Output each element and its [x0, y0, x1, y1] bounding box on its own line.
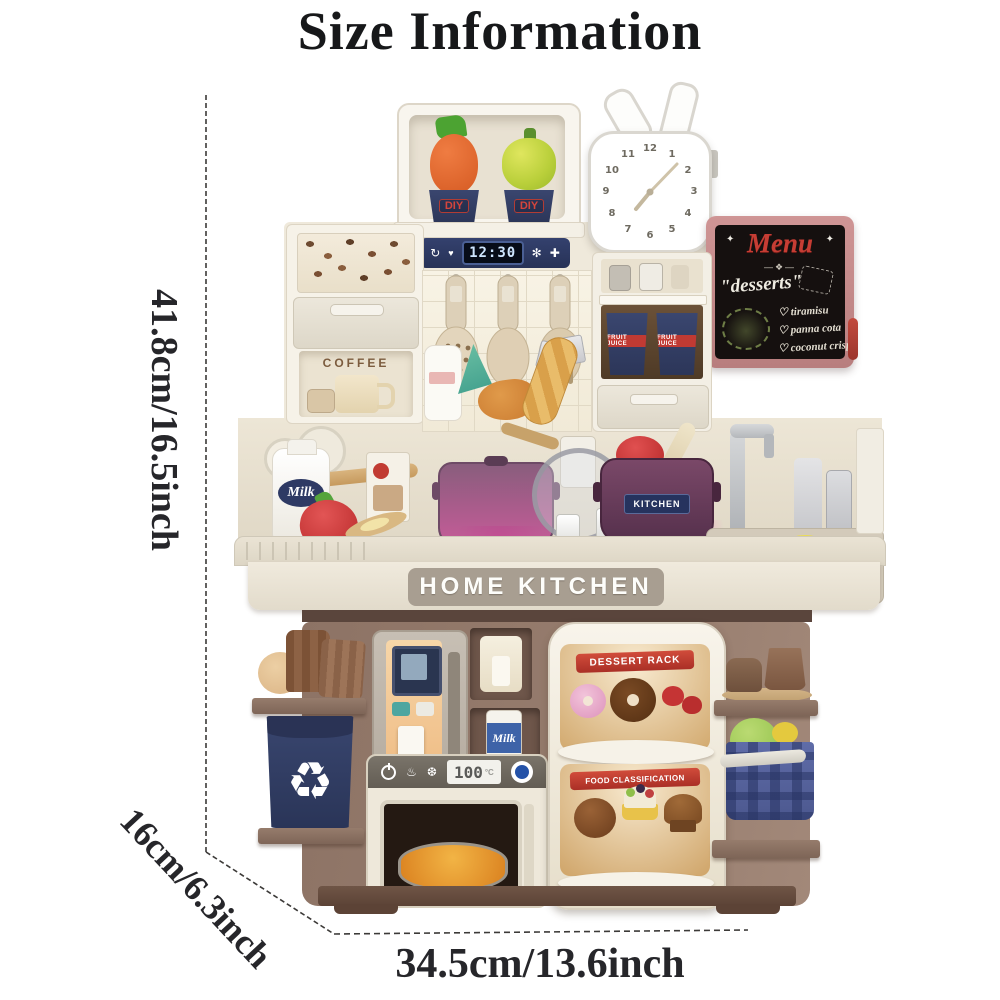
right-shelf-base: [712, 840, 820, 858]
size-information-image: Size Information 41.8cm/16.5inch 16cm/6.…: [0, 0, 1000, 1000]
menu-board: ✦ ✦ Menu —❖— "desserts" ♡ tiramisu ♡ pan…: [706, 216, 854, 368]
spice-jar: [609, 265, 631, 291]
clock-number: 10: [604, 165, 620, 177]
diy-cup-1-label: DIY: [439, 199, 469, 213]
temperature-value: 100: [454, 763, 483, 782]
pudding-mold-toy: [726, 658, 762, 692]
fruit-topping: [645, 789, 654, 798]
fruit-juice-label: FRUIT JUICE: [607, 335, 647, 347]
microwave: ♨ ❆ 100 °C: [366, 754, 548, 908]
clock-number: 11: [620, 149, 636, 161]
coffee-machine: COFFEE: [286, 224, 424, 424]
vending-button: [416, 702, 434, 716]
right-shelf-board: [714, 700, 818, 716]
clock-number: 5: [664, 224, 680, 236]
cereal-box-art: [373, 463, 389, 479]
clock-number: 6: [642, 230, 658, 242]
menu-item: ♡ coconut crisp: [778, 338, 852, 355]
cabinet-drawer: [597, 385, 709, 429]
rack-shelf: [558, 740, 714, 764]
yellow-fruit-toy: [772, 722, 798, 744]
drainboard: [246, 542, 372, 560]
temperature-unit: °C: [485, 768, 494, 777]
fruit-juice-label: FRUIT JUICE: [657, 335, 697, 347]
diy-cup-2: DIY: [500, 190, 558, 222]
pot-lid-knob: [484, 456, 508, 466]
clock-number: 2: [680, 165, 696, 177]
cabinet-base: [318, 886, 796, 906]
rack-top-tier: DESSERT RACK: [560, 644, 710, 750]
menu-item-text: tiramisu: [790, 304, 828, 318]
power-icon: [381, 765, 396, 780]
microwave-control-strip: ♨ ❆ 100 °C: [368, 756, 546, 788]
espresso-cup: [307, 389, 335, 413]
donut-hole: [627, 694, 639, 706]
strawberry-toy-small: [682, 696, 702, 714]
side-panel: [856, 428, 884, 534]
control-panel: ↻ ♥ 12:30 ✻ ✚: [420, 238, 570, 268]
milk-can-label: Milk: [487, 723, 521, 753]
toy-kitchen: DIY DIY ↻ ♥ 12:30 ✻ ✚ 12 1 2 3 4 5 6 7 8…: [0, 0, 1000, 1000]
dessert-rack: DESSERT RACK FOOD CLASSIFICATION: [548, 622, 726, 910]
clock-display: 12:30: [462, 241, 524, 265]
fruit-topping: [626, 788, 635, 797]
clock-number: 4: [680, 208, 696, 220]
heart-bullet-icon: ♡: [778, 324, 788, 337]
muffin-base: [670, 820, 696, 832]
rabbit-clock: 12 1 2 3 4 5 6 7 8 9 10 11: [588, 131, 712, 253]
pot-handle: [712, 482, 721, 502]
steam-icon: ♨: [406, 765, 417, 779]
chalk-marker: [848, 318, 858, 360]
cupcake-top: [624, 786, 656, 808]
pudding-mold-toy: [764, 648, 806, 690]
chalk-doodle-dessert: [722, 308, 770, 350]
faucet-body: [730, 430, 745, 536]
recycle-icon: ♻: [264, 740, 356, 824]
plus-icon: ✚: [550, 246, 560, 260]
clock-number: 12: [642, 143, 658, 155]
heart-bullet-icon: ♡: [778, 342, 788, 355]
rack-bottom-tier: FOOD CLASSIFICATION: [560, 764, 710, 876]
counter-underside: [302, 610, 812, 622]
juice-shelf: FRUIT JUICE FRUIT JUICE: [601, 305, 703, 379]
menu-items: ♡ tiramisu ♡ panna cota ♡ coconut crisp: [778, 304, 851, 353]
chocolate-donut-toy: [610, 678, 656, 722]
fruit-juice-cup-1: FRUIT JUICE: [603, 313, 651, 375]
left-shelf-board: [252, 698, 366, 714]
kitchen-pot-label: KITCHEN: [624, 494, 690, 514]
clock-number: 1: [664, 149, 680, 161]
spice-jar: [639, 263, 663, 291]
dispenser-niche: [470, 628, 532, 700]
faucet-spout-tip: [764, 434, 774, 458]
pepper-toy: [502, 138, 556, 190]
coffee-mug: [335, 375, 379, 413]
left-shelf-base: [258, 828, 364, 844]
clock-number: 7: [620, 224, 636, 236]
pan-in-microwave: [398, 842, 508, 892]
vending-display-screen: [401, 654, 427, 680]
dispenser-front: [492, 656, 510, 686]
pot-handle: [432, 482, 440, 500]
milk-bottle-toy: [424, 345, 462, 421]
microwave-handle: [524, 804, 534, 890]
clock-number: 8: [604, 208, 620, 220]
donut-hole: [583, 696, 593, 706]
water-drop-icon: ♥: [448, 248, 453, 258]
kitchen-pot-toy: KITCHEN: [600, 458, 714, 544]
cereal-box-art: [373, 485, 403, 511]
recycle-bin-toy: ♻: [264, 716, 356, 828]
diy-cup-1: DIY: [425, 190, 483, 222]
spice-shelf: [601, 259, 703, 293]
fan-icon: ✻: [532, 246, 542, 260]
milk-bottle-label: [429, 372, 455, 384]
menu-title: Menu: [706, 228, 854, 259]
carrot-toy: [430, 134, 478, 194]
coffee-bean-window: [297, 233, 415, 293]
dial-center: [515, 765, 529, 779]
drawer-handle: [630, 394, 678, 405]
cabinet-shelf-board: [599, 295, 707, 305]
menu-item-text: coconut crisp: [790, 339, 851, 354]
home-kitchen-label: HOME KITCHEN: [419, 573, 652, 601]
vending-display: [392, 646, 442, 696]
snowflake-icon: ❆: [427, 765, 437, 779]
shopping-basket-toy: [726, 742, 814, 820]
clock-number: 9: [598, 186, 614, 198]
microwave-dial: [511, 761, 533, 783]
diy-cup-2-label: DIY: [514, 199, 544, 213]
coffee-label: COFFEE: [299, 356, 413, 370]
rotate-icon: ↻: [430, 246, 440, 260]
vending-button: [392, 702, 410, 716]
home-kitchen-badge: HOME KITCHEN: [408, 568, 664, 606]
bin-rim: [264, 716, 356, 738]
soap-dispenser-toy: [794, 458, 822, 534]
pot-handle: [593, 482, 602, 502]
strawberry-toy-small: [662, 686, 684, 706]
menu-item-text: panna cota: [790, 322, 841, 337]
milk-jug-cap: [287, 439, 317, 455]
menu-item: ♡ tiramisu: [778, 302, 852, 319]
truffle-toy: [574, 798, 616, 838]
cabinet-foot: [716, 904, 780, 914]
basket-handle: [720, 749, 807, 768]
cream-dispenser-toy: [480, 636, 522, 692]
right-cabinet: FRUIT JUICE FRUIT JUICE: [592, 252, 712, 432]
heart-bullet-icon: ♡: [778, 306, 788, 319]
clock-number: 3: [686, 186, 702, 198]
drawer-handle: [330, 304, 384, 316]
soap-dispenser-toy: [826, 470, 852, 536]
fruit-topping: [636, 784, 645, 793]
temperature-display: 100 °C: [447, 760, 501, 784]
spice-jar: [671, 265, 689, 289]
menu-item: ♡ panna cota: [778, 320, 852, 337]
cabinet-foot: [334, 904, 398, 914]
pink-donut-toy: [570, 684, 606, 718]
coffee-drawer: [293, 297, 419, 349]
dessert-rack-banner: DESSERT RACK: [576, 650, 695, 673]
wafer-toy: [318, 639, 366, 700]
spoon-toy: [487, 274, 529, 386]
coffee-alcove: COFFEE: [299, 351, 413, 417]
mug-handle: [377, 383, 395, 409]
fruit-juice-cup-2: FRUIT JUICE: [653, 313, 701, 375]
